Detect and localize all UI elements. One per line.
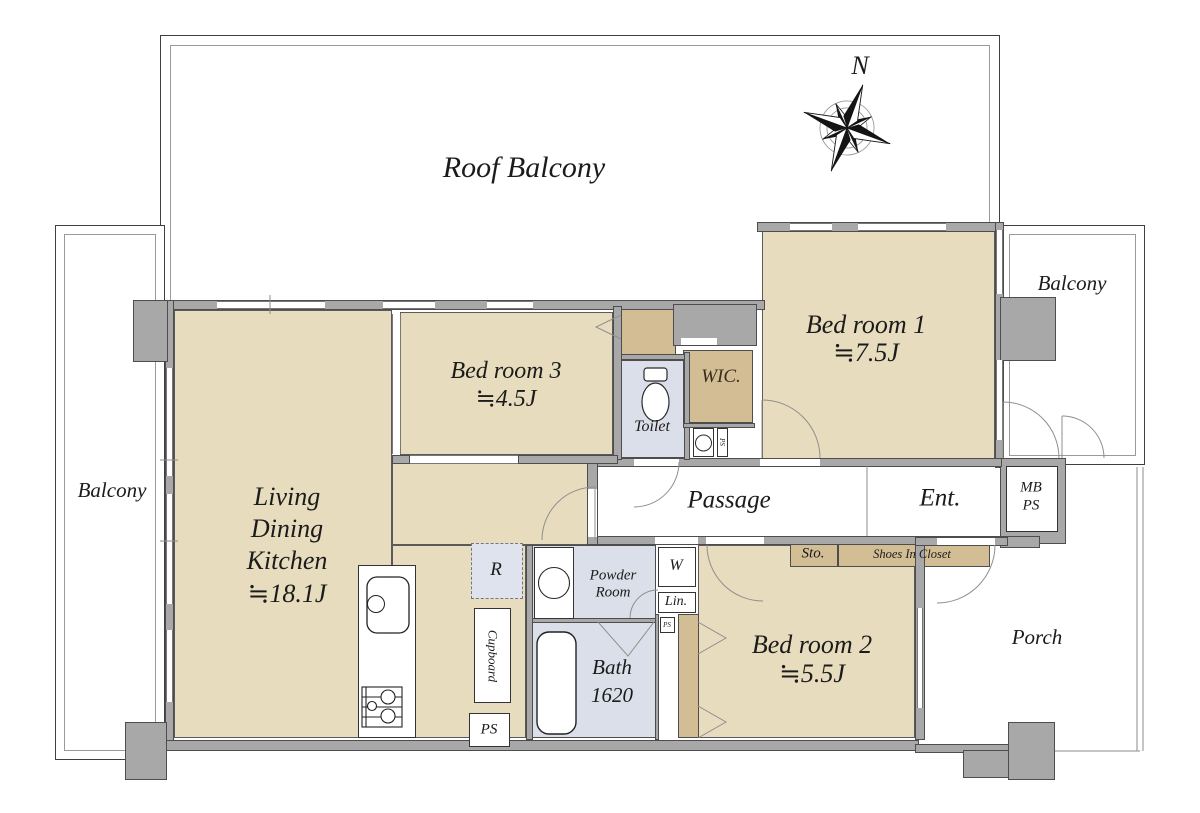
ps-hall-label: PS (663, 621, 671, 629)
window (166, 494, 173, 604)
door-opening (634, 459, 679, 466)
storage-label: Sto. (802, 545, 825, 562)
window (996, 360, 1003, 440)
ldk-label-line2: Dining (251, 514, 323, 544)
ldk-label-line3: Kitchen (247, 546, 328, 576)
linen-label: Lin. (665, 594, 687, 610)
pillar (963, 750, 1009, 778)
entrance-label: Ent. (920, 485, 961, 514)
closet-bedroom2 (678, 614, 699, 738)
toilet-basin (693, 428, 714, 457)
sliding-partition (410, 455, 518, 464)
powder-room-label-line1: Powder (590, 567, 637, 584)
window (166, 368, 173, 476)
room-ldk (392, 463, 588, 545)
powder-room-label-line2: Room (596, 584, 631, 601)
window (217, 301, 325, 309)
closet-bedroom3 (621, 308, 676, 356)
bedroom2-size: ≒5.5J (779, 659, 845, 689)
window (383, 301, 435, 309)
front-door-opening (937, 538, 995, 545)
compass-north-label: N (851, 51, 868, 81)
window (681, 338, 717, 345)
door-opening (706, 537, 764, 544)
door-opening (655, 537, 698, 544)
window (996, 230, 1003, 294)
wall (518, 455, 618, 464)
ps-toilet-label: PS (718, 438, 726, 446)
passage-label: Passage (687, 487, 770, 516)
mb-ps-label-line1: MB (1020, 479, 1042, 496)
mb-ps-label-line2: PS (1023, 497, 1040, 514)
door-opening (588, 489, 597, 537)
window (790, 223, 832, 231)
pillar (125, 722, 167, 780)
window (917, 608, 923, 708)
wall (165, 740, 919, 751)
wall (621, 354, 685, 360)
porch-label: Porch (1012, 625, 1063, 649)
ldk-label-line1: Living (254, 482, 320, 512)
wic-label: WIC. (701, 366, 741, 388)
kitchen-counter (358, 565, 416, 738)
bedroom3-label: Bed room 3 (450, 358, 561, 386)
window (858, 223, 946, 231)
door-opening (760, 459, 820, 466)
bath-size: 1620 (591, 683, 633, 707)
bedroom1-label: Bed room 1 (806, 310, 926, 340)
wall (392, 455, 410, 464)
bedroom3-size: ≒4.5J (476, 386, 537, 414)
wall (655, 614, 659, 740)
wall (526, 545, 533, 740)
cupboard-label: Cupboard (485, 630, 500, 682)
wall (613, 306, 622, 460)
roof-balcony-label: Roof Balcony (443, 151, 605, 186)
sliding-partition (392, 314, 401, 454)
pillar (1000, 297, 1056, 361)
pillar (133, 300, 168, 362)
bedroom1-size: ≒7.5J (833, 338, 899, 368)
toilet-label: Toilet (634, 418, 670, 436)
balcony-right-label: Balcony (1038, 271, 1107, 295)
room-toilet (621, 360, 686, 458)
bath-label: Bath (592, 655, 632, 679)
washer-label: W (669, 557, 682, 575)
window (166, 630, 173, 702)
refrigerator-label: R (490, 559, 502, 581)
balcony-left-label: Balcony (78, 478, 147, 502)
wall (684, 352, 690, 460)
pillar (1008, 722, 1055, 780)
vanity-unit (534, 547, 574, 619)
shoes-in-closet-label: Shoes In Closet (873, 547, 951, 561)
floor-plan: Roof Balcony N Balcony Balcony Porch Bed… (0, 0, 1200, 813)
ldk-size: ≒18.1J (248, 579, 327, 609)
bedroom2-label: Bed room 2 (752, 630, 872, 660)
ps-kitchen-label: PS (481, 721, 498, 738)
window (487, 301, 533, 309)
